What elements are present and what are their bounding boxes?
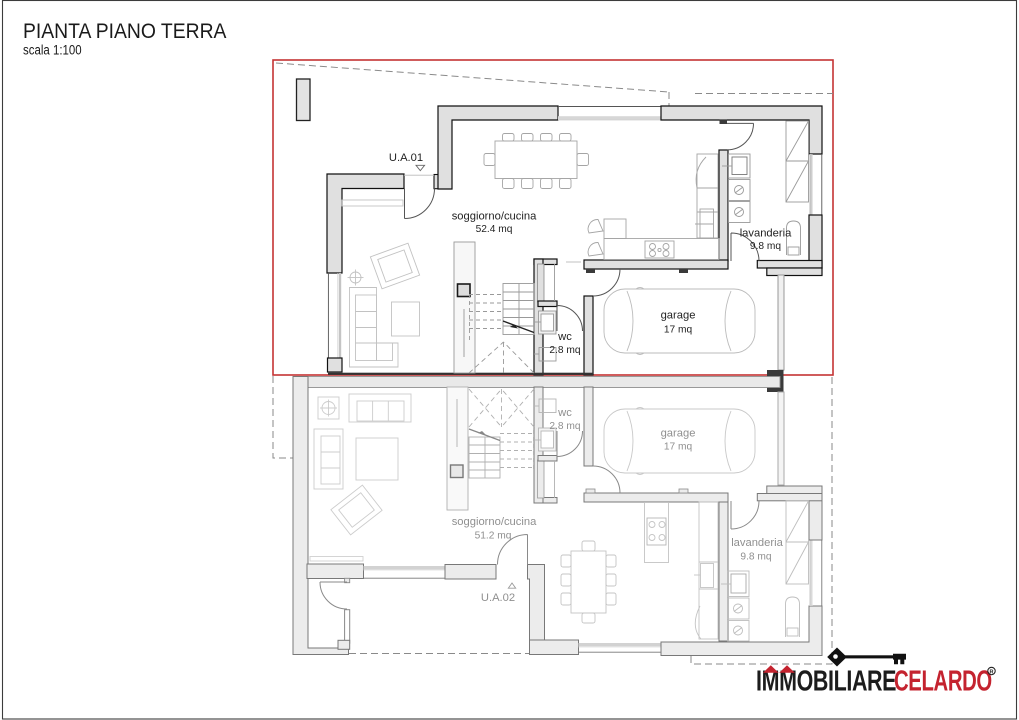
svg-text:52.4 mq: 52.4 mq — [476, 224, 513, 235]
svg-text:2.8 mq: 2.8 mq — [549, 421, 580, 432]
svg-text:scala 1:100: scala 1:100 — [23, 43, 82, 58]
svg-text:17 mq: 17 mq — [664, 325, 693, 336]
svg-text:garage: garage — [661, 310, 696, 322]
svg-text:PIANTA PIANO TERRA: PIANTA PIANO TERRA — [23, 19, 227, 43]
svg-text:soggiorno/cucina: soggiorno/cucina — [452, 516, 537, 528]
svg-text:garage: garage — [661, 428, 696, 440]
svg-text:U.A.01: U.A.01 — [389, 152, 423, 164]
svg-text:wc: wc — [557, 331, 572, 343]
svg-text:IMMOBILIARE: IMMOBILIARE — [756, 665, 896, 697]
svg-text:R: R — [990, 670, 994, 676]
svg-text:lavanderia: lavanderia — [731, 537, 783, 549]
svg-text:U.A.02: U.A.02 — [481, 592, 515, 604]
svg-text:51.2 mq: 51.2 mq — [475, 531, 512, 542]
svg-text:CELARDO: CELARDO — [894, 665, 992, 697]
svg-text:17 mq: 17 mq — [664, 442, 693, 453]
svg-text:soggiorno/cucina: soggiorno/cucina — [452, 211, 537, 223]
svg-text:9.8 mq: 9.8 mq — [740, 552, 771, 563]
svg-text:lavanderia: lavanderia — [740, 228, 792, 240]
svg-text:2.8 mq: 2.8 mq — [549, 345, 580, 356]
svg-text:9.8 mq: 9.8 mq — [750, 241, 781, 252]
svg-text:wc: wc — [557, 407, 572, 419]
